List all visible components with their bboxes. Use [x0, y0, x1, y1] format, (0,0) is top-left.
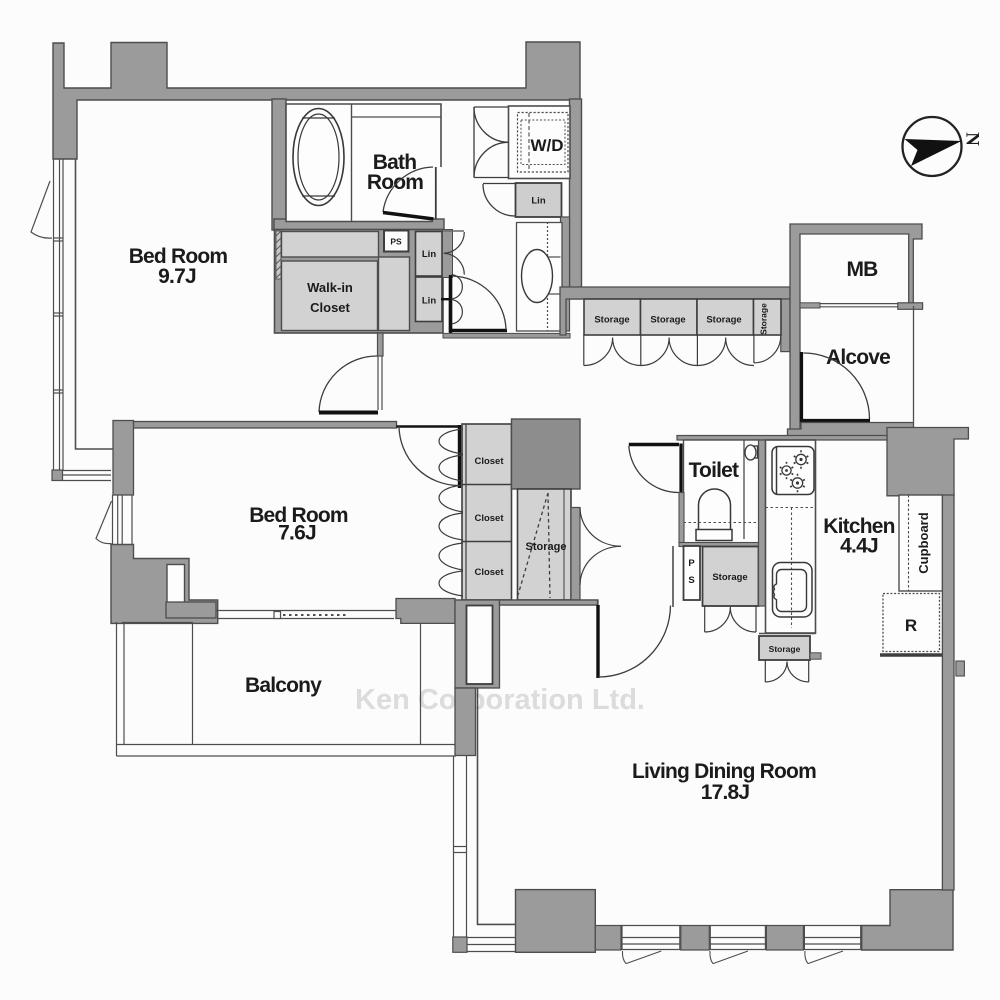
svg-text:Storage: Storage	[526, 541, 567, 553]
svg-text:P: P	[688, 558, 695, 569]
svg-text:Lin: Lin	[422, 296, 436, 307]
svg-text:R: R	[905, 616, 917, 635]
svg-text:N: N	[962, 132, 983, 146]
svg-text:Alcove: Alcove	[826, 346, 890, 369]
svg-text:Walk-in: Walk-in	[307, 280, 353, 295]
svg-text:17.8J: 17.8J	[701, 781, 750, 804]
svg-text:Cupboard: Cupboard	[916, 512, 931, 573]
svg-text:Balcony: Balcony	[245, 674, 322, 697]
svg-text:4.4J: 4.4J	[840, 535, 878, 558]
svg-text:Living Dining Room: Living Dining Room	[632, 760, 816, 783]
svg-text:Storage: Storage	[594, 315, 629, 326]
svg-text:Ken Corporation Ltd.: Ken Corporation Ltd.	[355, 684, 645, 716]
svg-text:Storage: Storage	[650, 315, 685, 326]
svg-text:Closet: Closet	[474, 456, 504, 467]
svg-text:Closet: Closet	[474, 567, 504, 578]
svg-text:PS: PS	[390, 237, 402, 247]
svg-text:S: S	[688, 575, 694, 586]
svg-text:Toilet: Toilet	[689, 459, 739, 482]
svg-text:MB: MB	[846, 258, 878, 281]
svg-text:W/D: W/D	[530, 136, 563, 155]
svg-text:Room: Room	[367, 171, 423, 194]
svg-text:Storage: Storage	[706, 315, 741, 326]
svg-text:9.7J: 9.7J	[158, 265, 196, 288]
svg-text:Lin: Lin	[422, 249, 436, 260]
svg-text:Storage: Storage	[769, 644, 801, 654]
svg-text:Storage: Storage	[712, 572, 747, 583]
svg-text:Lin: Lin	[531, 196, 545, 207]
svg-text:Closet: Closet	[474, 513, 504, 524]
svg-text:Closet: Closet	[310, 300, 350, 315]
svg-text:7.6J: 7.6J	[278, 522, 316, 545]
svg-text:Storage: Storage	[759, 303, 769, 335]
